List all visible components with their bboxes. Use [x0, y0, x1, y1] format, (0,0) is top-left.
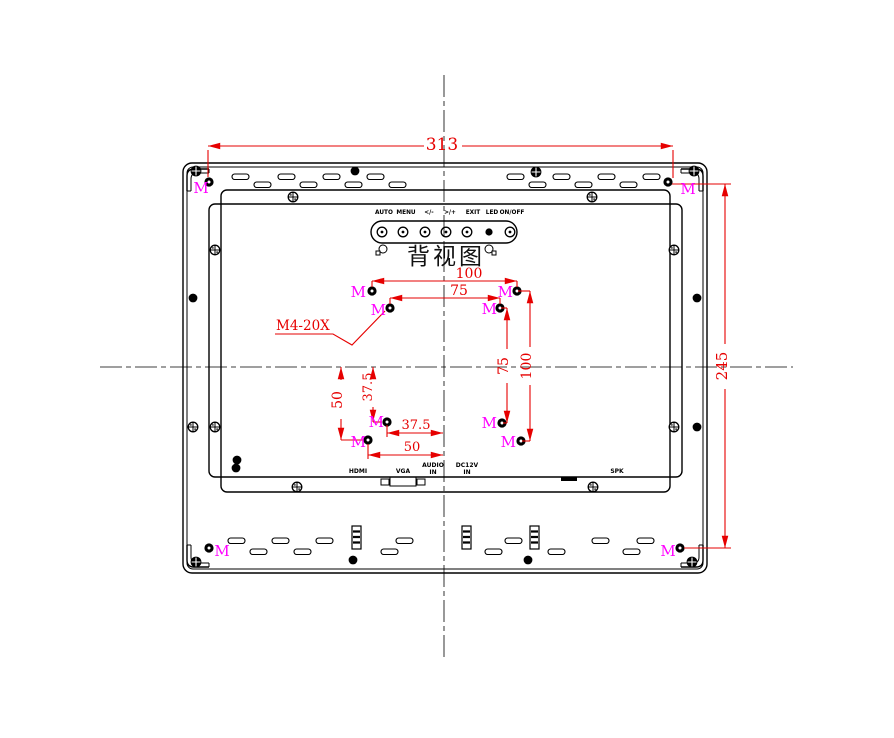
dimension-313: 313 — [208, 135, 673, 178]
port-labels: HDMI VGA AUDIO IN DC12V IN SPK — [349, 462, 624, 476]
mount-screw-icon — [675, 543, 684, 552]
vent-ladder-slot — [462, 526, 471, 549]
cross-screw-icon — [210, 422, 220, 432]
phillips-screw-icon — [191, 557, 202, 568]
vent-slot — [507, 174, 524, 180]
screws — [188, 166, 701, 568]
button-label-menu: MENU — [396, 210, 416, 216]
vent-slot — [529, 182, 546, 188]
vent-slot — [548, 549, 565, 555]
dimension-vesa100-vertical: 100 — [518, 291, 535, 441]
screw-head-icon — [351, 167, 360, 176]
dimension-245: 245 — [672, 184, 731, 548]
cross-screw-icon — [210, 245, 220, 255]
dimension-50-horizontal: 50 — [368, 440, 443, 459]
dc12v-in-label-line2: IN — [463, 469, 470, 476]
screw-mark-vesa100-br: M — [501, 433, 516, 451]
vga-port-label: VGA — [396, 468, 411, 475]
vent-slot — [323, 174, 340, 180]
cross-screw-icon — [587, 192, 597, 202]
screw-mark-vesa100-tr: M — [498, 283, 513, 301]
plus-button-hole — [441, 227, 451, 237]
chassis-outline — [183, 163, 707, 573]
screw-mark-bottom-right: M — [660, 542, 675, 560]
vent-slot — [228, 538, 245, 544]
phillips-screw-icon — [687, 557, 698, 568]
exit-button-hole — [462, 227, 472, 237]
cross-screw-icon — [669, 422, 679, 432]
button-label-led: LED — [486, 210, 499, 216]
minus-button-hole — [420, 227, 430, 237]
screw-head-icon — [693, 294, 702, 303]
vga-connector — [381, 477, 577, 486]
button-label-onoff: ON/OFF — [500, 210, 525, 216]
screw-mark-vesa100-tl: M — [351, 283, 366, 301]
vent-slot — [485, 549, 502, 555]
screw-note-text: M4-20X — [276, 318, 330, 334]
vent-ladder-slot — [530, 526, 539, 549]
vesa100-v-dim: 100 — [519, 353, 535, 380]
screw-mark-bottom-left: M — [214, 542, 229, 560]
overall-height-dim: 245 — [713, 352, 731, 381]
vent-slot — [367, 174, 384, 180]
cross-screw-icon — [669, 245, 679, 255]
screw-mark-vesa100-bl: M — [351, 433, 366, 451]
vesa75-v-dim: 75 — [496, 357, 512, 375]
cross-screw-icon — [292, 482, 302, 492]
vga-connector-body — [390, 477, 416, 486]
screw-mark-vesa75-tr: M — [482, 300, 497, 318]
screw-mark-vesa75-bl: M — [369, 413, 384, 431]
vent-slot — [232, 174, 249, 180]
vent-slots-bottom — [228, 526, 654, 555]
vent-slot — [250, 549, 267, 555]
vga-connector-tab — [417, 479, 425, 485]
screw-head-icon — [524, 556, 533, 565]
onoff-button-hole — [505, 227, 515, 237]
screw-head-icon — [349, 556, 358, 565]
dc12v-in-label-line1: DC12V — [456, 462, 479, 469]
vent-slot — [345, 182, 362, 188]
screw-head-icon — [189, 294, 198, 303]
button-label-auto: AUTO — [375, 210, 393, 216]
dimension-vesa75-vertical: 75 — [496, 308, 512, 423]
vent-slot — [592, 538, 609, 544]
screw-note-m4-20x: M4-20X — [275, 311, 385, 345]
screw-head-icon — [233, 456, 242, 465]
mount-screw-icon — [663, 177, 672, 186]
cross-screw-icon — [588, 482, 598, 492]
vent-slot — [300, 182, 317, 188]
vesa-screw-icon — [367, 286, 376, 295]
vent-slot — [505, 538, 522, 544]
phillips-screw-icon — [531, 167, 542, 178]
vent-slot — [316, 538, 333, 544]
phillips-screw-icon — [689, 166, 700, 177]
screw-mark-vesa75-tl: M — [371, 301, 386, 319]
vent-slot — [598, 174, 615, 180]
dimension-50-vertical: 50 — [330, 367, 363, 440]
phillips-screw-icon — [191, 166, 202, 177]
audio-in-label-line2: IN — [429, 469, 436, 476]
drawing-svg: AUTO MENU </- >/+ EXIT LED ON/OFF 背视图 HD… — [0, 0, 894, 738]
vent-slot — [381, 549, 398, 555]
mount-screw-icon — [204, 543, 213, 552]
dimension-37-5-horizontal: 37.5 — [387, 418, 443, 437]
port-opening — [561, 477, 577, 481]
button-label-plus: >/+ — [444, 210, 456, 216]
spk-port-label: SPK — [610, 468, 624, 475]
vesa75-h-dim: 75 — [450, 283, 468, 299]
cross-screw-icon — [288, 192, 298, 202]
vent-slot — [553, 174, 570, 180]
vent-slots-top — [232, 174, 660, 188]
vent-slot — [272, 538, 289, 544]
button-label-minus: </- — [424, 210, 434, 216]
vent-ladder-slot — [352, 526, 361, 549]
hdmi-port-label: HDMI — [349, 468, 367, 475]
vesa100-h-dim: 100 — [456, 266, 483, 282]
audio-in-label-line1: AUDIO — [422, 462, 444, 469]
offset50-h-dim: 50 — [404, 440, 421, 455]
vent-slot — [643, 174, 660, 180]
vent-slot — [396, 538, 413, 544]
screw-mark-top-left: M — [193, 179, 208, 197]
screw-head-icon — [693, 423, 702, 432]
vesa-screw-icon — [385, 303, 394, 312]
overall-width-dim: 313 — [426, 135, 458, 155]
screw-mark-vesa75-br: M — [482, 414, 497, 432]
screw-mark-top-right: M — [680, 180, 695, 198]
offset37-5-v-dim: 37.5 — [361, 373, 376, 402]
screw-head-icon — [232, 464, 241, 473]
menu-button-hole — [398, 227, 408, 237]
vent-slot — [278, 174, 295, 180]
vent-slot — [389, 182, 406, 188]
vent-slot — [294, 549, 311, 555]
chassis-outer-edge — [183, 163, 707, 573]
offset37-5-h-dim: 37.5 — [402, 418, 431, 433]
vent-slot — [254, 182, 271, 188]
button-label-exit: EXIT — [466, 210, 481, 216]
engineering-drawing-rear-view: AUTO MENU </- >/+ EXIT LED ON/OFF 背视图 HD… — [0, 0, 894, 738]
led-indicator-hole — [485, 228, 492, 235]
cross-screw-icon — [188, 422, 198, 432]
auto-button-hole — [377, 227, 387, 237]
offset50-v-dim: 50 — [330, 391, 346, 409]
vent-slot — [620, 182, 637, 188]
vent-slot — [623, 549, 640, 555]
vent-slot — [575, 182, 592, 188]
vga-connector-tab — [381, 479, 389, 485]
vent-slot — [637, 538, 654, 544]
